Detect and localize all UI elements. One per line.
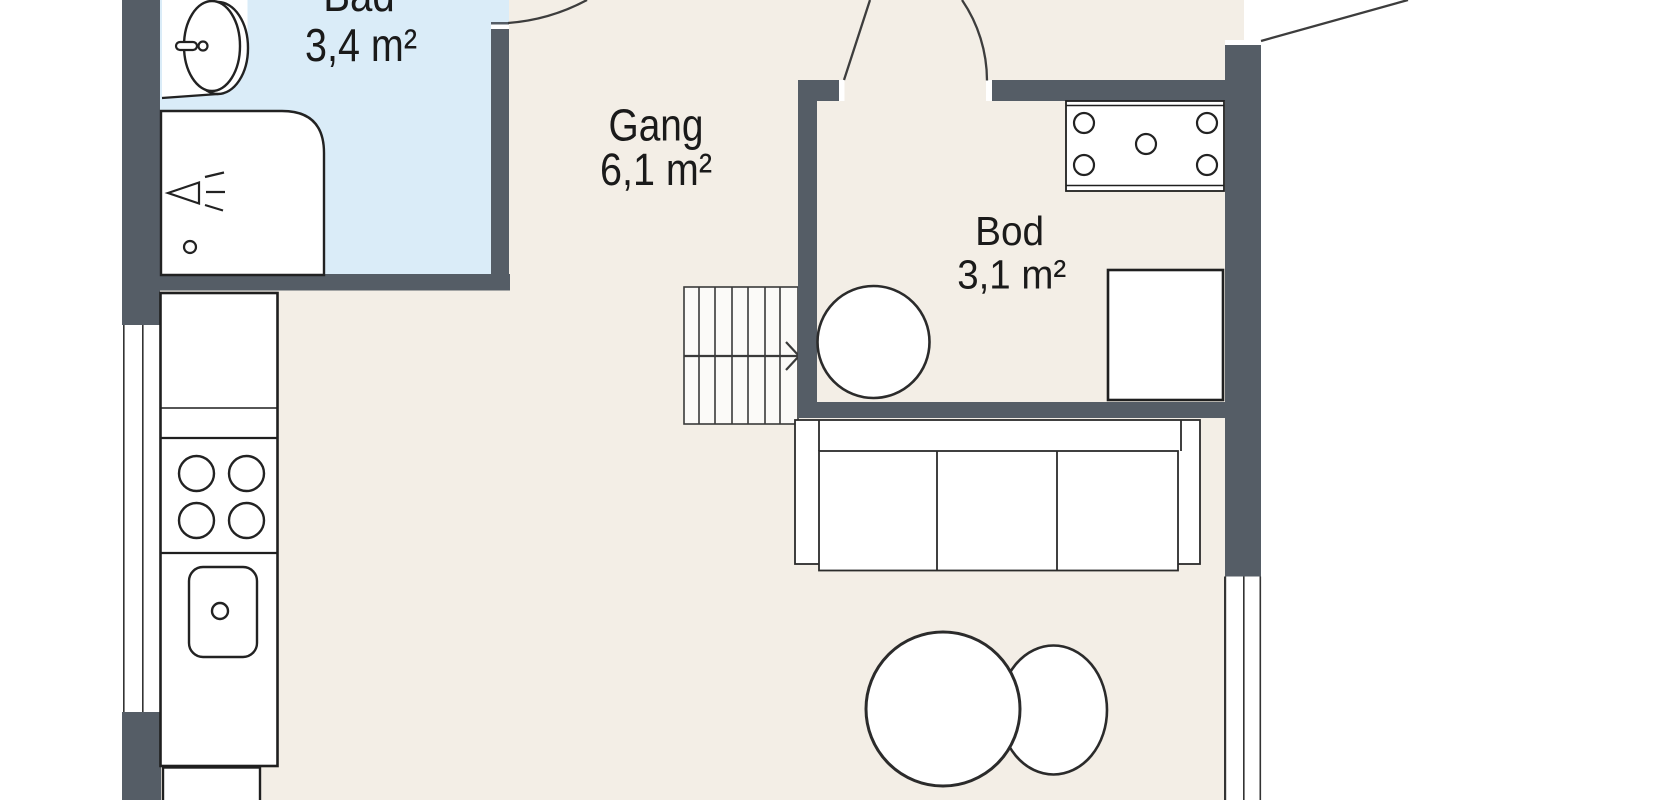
svg-text:3,1 m²: 3,1 m² <box>957 252 1066 298</box>
svg-text:3,4 m²: 3,4 m² <box>305 19 417 71</box>
svg-text:6,1 m²: 6,1 m² <box>600 144 712 195</box>
svg-text:Gang: Gang <box>609 99 704 150</box>
svg-text:Bod: Bod <box>975 208 1044 254</box>
